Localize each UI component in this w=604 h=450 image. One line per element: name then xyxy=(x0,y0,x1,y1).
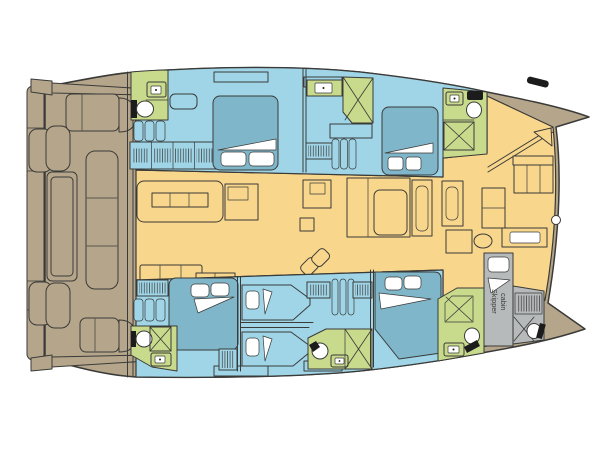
starboard-forward-bathroom xyxy=(438,288,484,361)
hanger-hatch xyxy=(355,285,370,296)
pillow xyxy=(406,157,421,170)
toilet-tank xyxy=(131,331,136,347)
pillow xyxy=(221,152,246,166)
pillow xyxy=(249,152,274,166)
hanger-hatch xyxy=(175,149,192,163)
catamaran-floorplan: Skipper cabin xyxy=(0,0,604,450)
pillow xyxy=(385,277,402,290)
foredeck-locker xyxy=(514,165,553,193)
bench-seat xyxy=(170,94,197,109)
pillow xyxy=(211,283,229,296)
sink-drain xyxy=(155,89,157,91)
floorplan-canvas: Skipper cabin xyxy=(0,0,604,450)
stair xyxy=(156,299,165,321)
basin-drain xyxy=(323,87,325,89)
pillow xyxy=(404,276,421,289)
salon-side-table xyxy=(300,218,314,231)
dining-bench xyxy=(412,180,432,236)
skipper-cabin: Skipper cabin xyxy=(484,253,513,346)
targa-bar-starboard-flare xyxy=(31,355,52,371)
pillow xyxy=(488,257,509,272)
toilet-bowl xyxy=(467,102,482,118)
starboard-hull-cabins xyxy=(131,270,484,377)
galley-sink-oval xyxy=(474,234,492,248)
sink-drain xyxy=(339,360,341,362)
sink-drain xyxy=(454,98,456,100)
hanger-hatch xyxy=(139,283,166,294)
hanger-hatch xyxy=(197,149,215,163)
sink-drain xyxy=(159,359,161,361)
vanity-desk xyxy=(330,124,372,138)
stair xyxy=(341,139,348,169)
stair xyxy=(332,139,339,169)
hull-step-starboard xyxy=(46,283,70,328)
dining-table xyxy=(374,190,407,235)
stair xyxy=(349,139,356,169)
deck-hatch xyxy=(214,72,268,82)
toilet-bowl xyxy=(137,101,154,117)
galley-island xyxy=(137,181,223,222)
skipper-bathroom xyxy=(513,286,546,344)
hanger-hatch xyxy=(222,351,235,368)
stair xyxy=(332,279,338,315)
stair xyxy=(340,279,346,315)
skipper-cabin-label-line2: cabin xyxy=(499,293,508,310)
port-hull-cabins xyxy=(130,68,487,178)
pillow xyxy=(246,291,259,309)
hull-step-port xyxy=(46,126,70,171)
foredeck-cabinet-inner xyxy=(510,232,540,243)
hanger-hatch xyxy=(132,149,149,163)
cockpit-sofa xyxy=(86,151,118,289)
cockpit-bench-starboard xyxy=(80,318,119,352)
stair xyxy=(134,299,143,321)
foredeck-shelf xyxy=(513,156,553,165)
galley-cabinet-a xyxy=(225,184,258,220)
nav-bench xyxy=(442,181,463,226)
hanger-hatch xyxy=(517,296,540,312)
skipper-cabin-label-line1: Skipper xyxy=(490,289,499,314)
hanger-hatch xyxy=(309,285,328,296)
port-aft-lockers xyxy=(130,142,217,169)
toilet-tank xyxy=(467,91,483,100)
sink-drain xyxy=(453,349,455,351)
hanger-hatch xyxy=(154,149,171,163)
targa-bar-port-flare xyxy=(31,79,52,95)
pillow xyxy=(246,338,259,356)
stair xyxy=(145,299,154,321)
starboard-mid-bathroom xyxy=(308,329,372,369)
hanger-hatch xyxy=(308,146,330,157)
galley-fwd-table xyxy=(446,230,472,253)
pillow xyxy=(388,157,403,170)
port-aft-stairs xyxy=(134,121,165,141)
pillow xyxy=(191,284,209,297)
cockpit-bench-port xyxy=(66,94,119,131)
bow-winch xyxy=(552,216,561,225)
bow-cleat xyxy=(526,76,549,88)
port-forward-bathroom xyxy=(443,88,487,158)
port-aft-bathroom xyxy=(131,70,168,120)
